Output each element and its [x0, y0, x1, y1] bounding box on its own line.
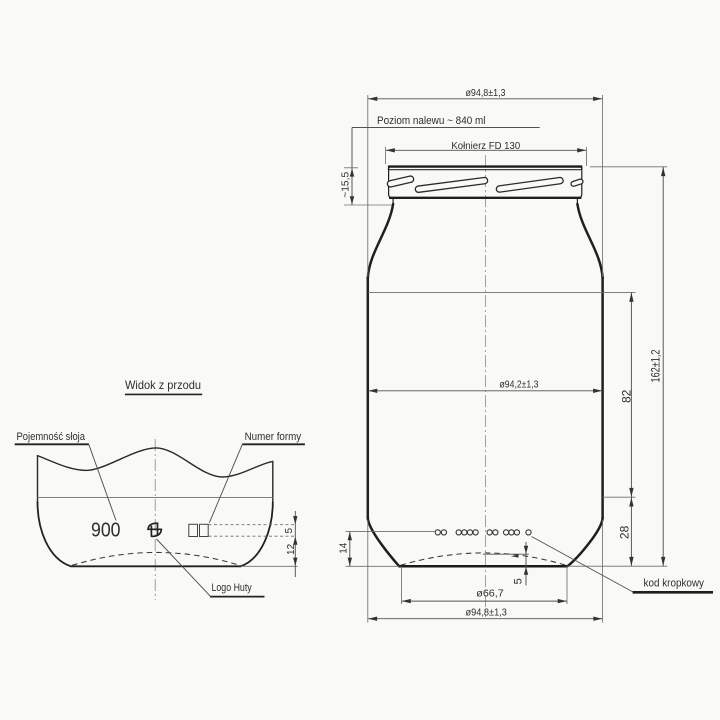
- svg-text:Widok z przodu: Widok z przodu: [125, 378, 201, 392]
- svg-text:ø94,2±1,3: ø94,2±1,3: [500, 378, 539, 390]
- svg-text:ø94,8±1,3: ø94,8±1,3: [466, 606, 507, 618]
- svg-text:162±1,2: 162±1,2: [651, 350, 663, 383]
- svg-text:82: 82: [619, 389, 633, 403]
- svg-text:5: 5: [512, 578, 524, 584]
- svg-text:ø94,8±1,3: ø94,8±1,3: [466, 87, 506, 99]
- svg-text:Poziom nalewu ~ 840 ml: Poziom nalewu ~ 840 ml: [377, 115, 486, 127]
- svg-text:900: 900: [91, 520, 121, 542]
- svg-text:14: 14: [338, 542, 349, 554]
- svg-text:12: 12: [286, 543, 297, 555]
- svg-text:Kołnierz FD 130: Kołnierz FD 130: [451, 141, 520, 152]
- svg-text:Pojemność słoja: Pojemność słoja: [17, 431, 86, 443]
- svg-text:ø66,7: ø66,7: [476, 587, 504, 599]
- svg-text:Logo Huty: Logo Huty: [212, 582, 253, 594]
- svg-text:28: 28: [618, 525, 632, 539]
- svg-text:kod kropkowy: kod kropkowy: [644, 577, 705, 589]
- svg-text:~15,5: ~15,5: [341, 171, 352, 197]
- svg-text:Numer formy: Numer formy: [245, 431, 302, 443]
- svg-text:5: 5: [284, 527, 295, 533]
